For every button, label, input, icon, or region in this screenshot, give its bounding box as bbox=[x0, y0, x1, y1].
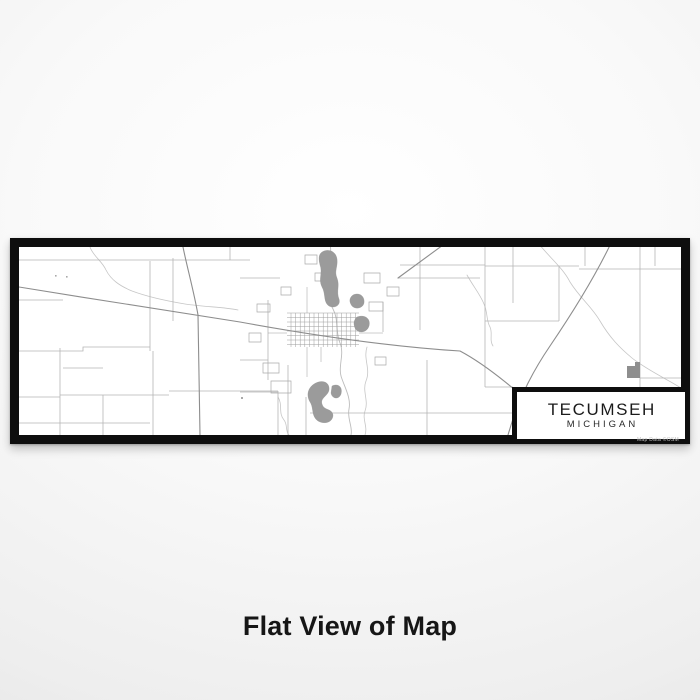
map-title: TECUMSEH bbox=[546, 401, 656, 418]
map-subtitle: MICHIGAN bbox=[564, 420, 639, 430]
map-title-card: TECUMSEH MICHIGAN bbox=[512, 387, 690, 444]
product-photo: TECUMSEH MICHIGAN Map Data ©OSM Flat Vie… bbox=[0, 0, 700, 700]
village-patch bbox=[627, 362, 640, 378]
map-specks bbox=[55, 275, 243, 399]
map-attribution: Map Data ©OSM bbox=[637, 438, 679, 443]
map-print-frame: TECUMSEH MICHIGAN Map Data ©OSM bbox=[10, 238, 690, 444]
lakes bbox=[308, 250, 369, 422]
product-caption: Flat View of Map bbox=[0, 611, 700, 642]
